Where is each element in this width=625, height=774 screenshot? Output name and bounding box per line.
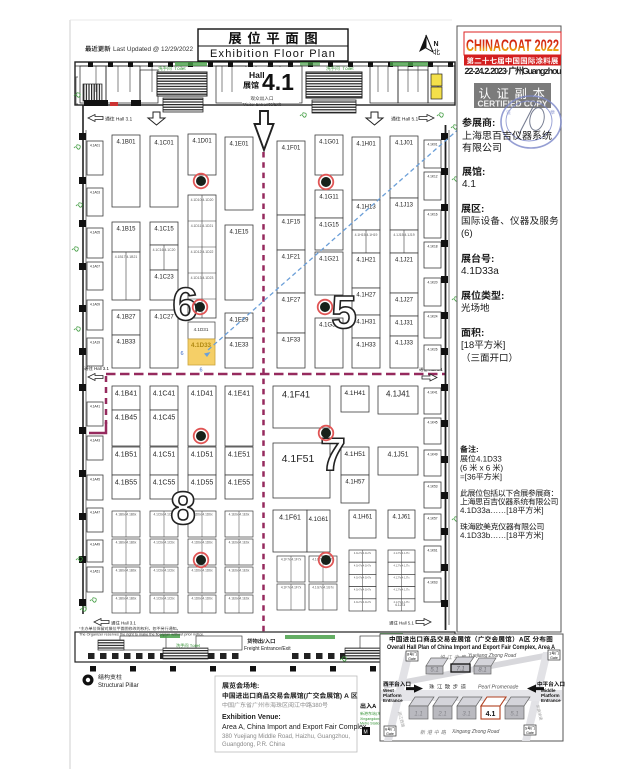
svg-text:4.1J13: 4.1J13 (395, 203, 414, 209)
svg-text:4.1C01: 4.1C01 (154, 141, 174, 147)
svg-text:Guangdong, P.R. China: Guangdong, P.R. China (222, 742, 286, 748)
svg-text:3.1: 3.1 (462, 712, 470, 718)
svg-text:Gate: Gate (386, 732, 394, 736)
svg-text:Xingang Zhong Road: Xingang Zhong Road (451, 729, 499, 735)
svg-text:4.1B55: 4.1B55 (115, 480, 137, 487)
svg-text:4.1E6x 4.1E6x: 4.1E6x 4.1E6x (229, 513, 250, 517)
svg-text:4.1K45: 4.1K45 (427, 421, 437, 425)
svg-text:4.1F21: 4.1F21 (282, 255, 301, 261)
svg-text:4.1H33: 4.1H33 (356, 343, 376, 349)
svg-text:Last Updated @ 12/29/2022: Last Updated @ 12/29/2022 (113, 46, 193, 53)
svg-text:4.1K49: 4.1K49 (427, 453, 437, 457)
svg-text:4.1K12: 4.1K12 (427, 175, 437, 179)
svg-text:4.1J27: 4.1J27 (395, 298, 414, 304)
svg-text:4.1K41: 4.1K41 (427, 391, 437, 395)
svg-text:4.1H41: 4.1H41 (345, 390, 366, 397)
svg-text:4.1F41: 4.1F41 (282, 390, 310, 400)
svg-text:380 Yuejiang Middle Road, Haiz: 380 Yuejiang Middle Road, Haizhu, Guangz… (222, 734, 350, 740)
svg-text:4.1K16: 4.1K16 (427, 213, 437, 217)
svg-text:4.1D11 4.1D21: 4.1D11 4.1D21 (191, 224, 214, 228)
svg-text:4.1H01: 4.1H01 (356, 142, 376, 148)
svg-text:4.1A41: 4.1A41 (90, 405, 100, 409)
svg-text:4.1J7x 4.1J7x: 4.1J7x 4.1J7x (393, 551, 410, 555)
svg-text:4.1B45: 4.1B45 (115, 415, 137, 422)
svg-text:4.1J51: 4.1J51 (387, 452, 408, 459)
svg-text:5.1: 5.1 (430, 668, 438, 674)
svg-text:M: M (364, 730, 368, 736)
svg-text:4.1H21: 4.1H21 (356, 258, 376, 264)
svg-text:Exhibition Venue:: Exhibition Venue: (222, 714, 281, 721)
svg-text:4.1F33: 4.1F33 (282, 338, 301, 344)
svg-text:4.1A05: 4.1A05 (90, 231, 100, 235)
svg-text:4.1A01: 4.1A01 (90, 144, 100, 148)
svg-text:4.1J01: 4.1J01 (395, 141, 414, 147)
svg-text:4.1E6x 4.1E6x: 4.1E6x 4.1E6x (229, 541, 250, 545)
svg-text:4.1B01: 4.1B01 (116, 140, 136, 146)
svg-text:4.1A07: 4.1A07 (90, 265, 100, 269)
svg-text:Gate: Gate (408, 657, 416, 661)
svg-text:4.1G7x 4.1G7x: 4.1G7x 4.1G7x (312, 586, 334, 590)
svg-text:N: N (434, 41, 439, 48)
svg-text:Visitor Entrance/Exit: Visitor Entrance/Exit (243, 102, 281, 107)
svg-text:4.1F61: 4.1F61 (279, 515, 301, 522)
svg-text:7.1: 7.1 (456, 667, 464, 673)
svg-text:4.1B41: 4.1B41 (115, 391, 137, 398)
svg-text:4.1H27: 4.1H27 (356, 293, 376, 299)
svg-text:4.1G61: 4.1G61 (309, 517, 329, 523)
svg-text:Gate: Gate (550, 656, 558, 660)
svg-text:4.1E51: 4.1E51 (228, 452, 250, 459)
svg-text:4.1G15: 4.1G15 (319, 223, 339, 229)
svg-text:4.1F7x 4.1F7x: 4.1F7x 4.1F7x (281, 586, 302, 590)
svg-text:4.1H61: 4.1H61 (353, 515, 373, 521)
svg-text:4.1A09: 4.1A09 (90, 303, 100, 307)
svg-text:4.1H7x 4.1H7x: 4.1H7x 4.1H7x (354, 551, 372, 555)
svg-text:4.1D51: 4.1D51 (191, 452, 214, 459)
svg-text:4.1E6x 4.1E6x: 4.1E6x 4.1E6x (229, 597, 250, 601)
svg-text:6: 6 (180, 351, 183, 357)
svg-text:4.1F27: 4.1F27 (282, 298, 301, 304)
svg-text:Area A, China Import and Expor: Area A, China Import and Export Fair Com… (222, 724, 367, 731)
svg-text:4.1J41: 4.1J41 (386, 390, 411, 399)
svg-text:6: 6 (199, 368, 202, 374)
svg-text:4.1H57: 4.1H57 (345, 480, 365, 486)
svg-text:4.1C45: 4.1C45 (153, 415, 176, 422)
svg-text:8: 8 (170, 482, 196, 534)
svg-text:The Organizer reserves the rig: The Organizer reserves the right to make… (79, 633, 204, 637)
svg-text:4.1H7x 4.1H7x: 4.1H7x 4.1H7x (354, 600, 372, 604)
svg-text:4.1C6x 4.1C6x: 4.1C6x 4.1C6x (153, 541, 174, 545)
svg-text:4.1D01: 4.1D01 (192, 139, 212, 145)
svg-text:4.1C6x 4.1C6x: 4.1C6x 4.1C6x (153, 569, 174, 573)
svg-text:4.1K63: 4.1K63 (427, 581, 437, 585)
svg-text:4.1D12 4.1D22: 4.1D12 4.1D22 (191, 250, 214, 254)
svg-text:4.1C51: 4.1C51 (153, 452, 176, 459)
svg-text:4.1K20: 4.1K20 (427, 281, 437, 285)
svg-text:4.1J31: 4.1J31 (395, 321, 414, 327)
svg-text:4.1B17 4.1B21: 4.1B17 4.1B21 (115, 255, 138, 259)
svg-text:4.1E15: 4.1E15 (229, 230, 249, 236)
svg-text:Structural Pillar: Structural Pillar (98, 683, 139, 689)
svg-text:4.1J7x 4.1J7x: 4.1J7x 4.1J7x (393, 576, 410, 580)
svg-text:4.1J73: 4.1J73 (395, 603, 405, 607)
svg-text:4.1A47: 4.1A47 (90, 511, 100, 515)
svg-text:4.1J7x 4.1J7x: 4.1J7x 4.1J7x (393, 563, 410, 567)
svg-text:Exhibition Floor Plan: Exhibition Floor Plan (210, 48, 336, 60)
svg-text:4.1G11: 4.1G11 (319, 195, 339, 201)
svg-text:(6): (6) (461, 228, 473, 239)
svg-text:4.1A03: 4.1A03 (90, 191, 100, 195)
svg-text:Metro Station: Metro Station (360, 722, 381, 726)
svg-text:Gate: Gate (526, 731, 534, 735)
svg-text:4.1E01: 4.1E01 (229, 142, 249, 148)
svg-text:8.1: 8.1 (478, 668, 486, 674)
svg-text:4.1H51: 4.1H51 (345, 451, 366, 458)
svg-text:4.1B6x 4.1B6x: 4.1B6x 4.1B6x (116, 569, 137, 573)
svg-text:4.1B6x 4.1B6x: 4.1B6x 4.1B6x (116, 513, 137, 517)
svg-text:4.1E41: 4.1E41 (228, 391, 250, 398)
svg-text:4.1B6x 4.1B6x: 4.1B6x 4.1B6x (116, 541, 137, 545)
svg-text:4.1D6x 4.1D6x: 4.1D6x 4.1D6x (191, 541, 212, 545)
svg-text:Xingangdong: Xingangdong (360, 717, 381, 721)
svg-text:4.1H7x 4.1H7x: 4.1H7x 4.1H7x (354, 563, 372, 567)
svg-text:4.1E6x 4.1E6x: 4.1E6x 4.1E6x (229, 569, 250, 573)
svg-text:4.1F15: 4.1F15 (282, 220, 301, 226)
svg-text:4.1A45: 4.1A45 (90, 478, 100, 482)
svg-text:4.1K26: 4.1K26 (427, 348, 437, 352)
svg-text:CHINACOAT 2022: CHINACOAT 2022 (466, 37, 559, 55)
svg-text:4.1J21: 4.1J21 (395, 258, 414, 264)
svg-text:Pearl Promenade: Pearl Promenade (478, 685, 518, 691)
svg-text:4.1: 4.1 (486, 711, 496, 718)
svg-text:4.1E33: 4.1E33 (229, 343, 249, 349)
svg-text:4.1B51: 4.1B51 (115, 452, 137, 459)
svg-text:4.1B27: 4.1B27 (116, 315, 136, 321)
svg-text:4.1A49: 4.1A49 (90, 543, 100, 547)
svg-text:4.1F51: 4.1F51 (282, 453, 315, 465)
svg-text:Entrance: Entrance (383, 698, 403, 703)
svg-text:4.1J7x 4.1J7x: 4.1J7x 4.1J7x (393, 588, 410, 592)
svg-text:4.1K18: 4.1K18 (427, 245, 437, 249)
svg-text:4.1A51: 4.1A51 (90, 570, 100, 574)
svg-text:4.1J33: 4.1J33 (395, 341, 414, 347)
svg-text:Entrance: Entrance (541, 698, 561, 703)
svg-text:4.1K24: 4.1K24 (427, 315, 437, 319)
svg-text:4.1G21: 4.1G21 (319, 257, 339, 263)
svg-text:4.1D6x 4.1D6x: 4.1D6x 4.1D6x (191, 569, 212, 573)
svg-text:4.1C16 4.1C20: 4.1C16 4.1C20 (153, 248, 176, 252)
svg-text:4.1D6x 4.1D6x: 4.1D6x 4.1D6x (191, 597, 212, 601)
svg-text:4.1F7x 4.1F7x: 4.1F7x 4.1F7x (281, 558, 302, 562)
svg-text:4.1D33a: 4.1D33a (461, 266, 499, 277)
svg-text:5: 5 (331, 286, 357, 338)
svg-text:4.1B33: 4.1B33 (116, 340, 136, 346)
svg-text:4.1B6x 4.1B6x: 4.1B6x 4.1B6x (116, 597, 137, 601)
svg-text:4.1: 4.1 (462, 179, 476, 190)
svg-text:4.1K01: 4.1K01 (427, 143, 437, 147)
svg-text:4.1H31: 4.1H31 (356, 320, 376, 326)
svg-text:4.1C41: 4.1C41 (153, 391, 176, 398)
svg-text:1.1: 1.1 (414, 712, 422, 718)
svg-text:4.1E55: 4.1E55 (228, 480, 250, 487)
svg-text:4.1C15: 4.1C15 (154, 227, 174, 233)
svg-text:4.1: 4.1 (262, 69, 294, 95)
svg-text:5.1: 5.1 (510, 712, 518, 718)
svg-text:4.1K61: 4.1K61 (427, 549, 437, 553)
svg-text:4.1A19: 4.1A19 (90, 341, 100, 345)
svg-text:4.1H7x 4.1H7x: 4.1H7x 4.1H7x (354, 588, 372, 592)
svg-text:4.1J15 4.1J19: 4.1J15 4.1J19 (393, 233, 414, 237)
svg-text:4.1K53: 4.1K53 (427, 485, 437, 489)
svg-text:Freight Entrance/Exit: Freight Entrance/Exit (244, 646, 291, 652)
svg-text:4.1D33: 4.1D33 (191, 342, 212, 349)
svg-text:4.1D41: 4.1D41 (191, 391, 214, 398)
svg-text:4.1G01: 4.1G01 (319, 140, 339, 146)
svg-text:4.1F01: 4.1F01 (282, 146, 301, 152)
svg-text:4.1H15 4.1H19: 4.1H15 4.1H19 (355, 233, 378, 237)
svg-text:4.1C6x 4.1C6x: 4.1C6x 4.1C6x (153, 597, 174, 601)
svg-text:4.1D10 4.1D20: 4.1D10 4.1D20 (191, 198, 214, 202)
svg-text:4.1K57: 4.1K57 (427, 517, 437, 521)
svg-text:4.1A43: 4.1A43 (90, 439, 100, 443)
svg-text:4.1H7x 4.1H7x: 4.1H7x 4.1H7x (354, 576, 372, 580)
svg-text:4.1J61: 4.1J61 (392, 515, 411, 521)
svg-text:4.1B15: 4.1B15 (116, 227, 136, 233)
svg-text:Overall Hall Plan of China Imp: Overall Hall Plan of China Import and Ex… (387, 645, 556, 651)
svg-text:2.1: 2.1 (437, 712, 446, 718)
